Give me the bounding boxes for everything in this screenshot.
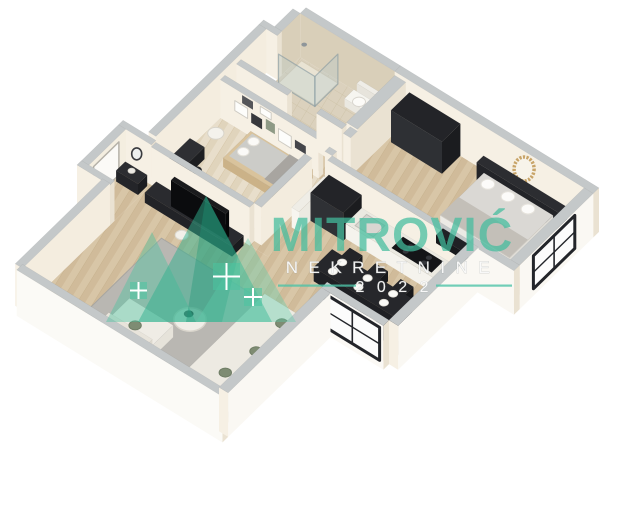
logo-window-icon: [244, 288, 262, 306]
master-pillow: [501, 192, 515, 202]
watermark-year: 2 0 2 2: [356, 279, 433, 296]
watermark-subtitle: NEKRETNINE: [286, 258, 501, 277]
kids-bed-pillow: [238, 148, 250, 156]
kids-bed-pillow: [248, 137, 260, 145]
watermark-line-left: [278, 285, 356, 287]
floor-plan-svg: MITROVIĆ NEKRETNINE 2 0 2 2: [0, 0, 630, 516]
watermark-line-right: [436, 285, 512, 287]
logo-window-icon: [130, 282, 147, 299]
entry-vase: [128, 168, 135, 173]
logo-window-icon: [213, 263, 240, 290]
shower-head: [301, 43, 307, 47]
armchair-pillow: [129, 321, 141, 330]
toilet-seat: [353, 97, 366, 106]
master-pillow: [521, 204, 535, 214]
entry-mirror: [132, 148, 142, 160]
watermark-brand: MITROVIĆ: [271, 207, 514, 262]
master-pillow: [481, 179, 495, 189]
dinner-plate: [379, 299, 388, 306]
screenshot-root: MITROVIĆ NEKRETNINE 2 0 2 2: [0, 0, 630, 516]
kids-round-table: [208, 127, 224, 139]
sofa-pillow: [219, 368, 231, 377]
